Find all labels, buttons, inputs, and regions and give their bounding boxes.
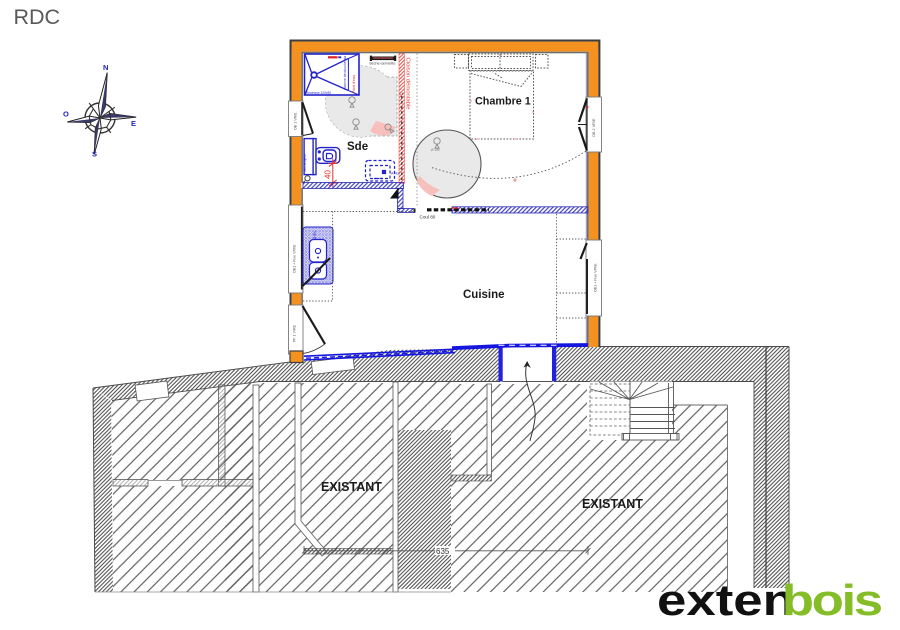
svg-text:Cuisine: Cuisine — [463, 289, 505, 301]
svg-text:OB 2 VR/E: OB 2 VR/E — [592, 118, 596, 137]
svg-text:Sde: Sde — [347, 141, 368, 153]
svg-text:635: 635 — [436, 547, 450, 556]
svg-text:EXISTANT: EXISTANT — [582, 497, 643, 511]
svg-text:Sèche-serviette: Sèche-serviette — [369, 62, 395, 66]
svg-text:S: S — [92, 150, 97, 159]
svg-text:OB1 + Fixe V/R/E: OB1 + Fixe V/R/E — [293, 244, 297, 273]
svg-text:PF 1 V/RE: PF 1 V/RE — [293, 324, 297, 342]
svg-text:N: N — [103, 63, 108, 72]
svg-text:O: O — [63, 110, 69, 119]
svg-text:Ø 150: Ø 150 — [431, 148, 440, 152]
svg-text:exten: exten — [657, 576, 795, 625]
svg-text:OB1 + Fixe V/R/E: OB1 + Fixe V/R/E — [594, 263, 598, 292]
svg-text:Point d'eau: Point d'eau — [352, 75, 356, 93]
svg-text:Receveur 120x90: Receveur 120x90 — [306, 91, 331, 95]
svg-text:colonne de douche pla: colonne de douche pla — [343, 56, 347, 90]
svg-text:Cloison démontable: Cloison démontable — [405, 58, 411, 111]
svg-text:E: E — [131, 119, 136, 128]
svg-text:Coul 80: Coul 80 — [420, 215, 436, 220]
svg-text:40: 40 — [324, 170, 333, 179]
svg-text:A+Ev: A+Ev — [313, 230, 317, 239]
svg-text:bois: bois — [782, 576, 882, 625]
svg-text:WC broyeur: WC broyeur — [303, 153, 307, 172]
svg-text:Chambre 1: Chambre 1 — [475, 96, 531, 108]
svg-text:RDC: RDC — [14, 5, 61, 29]
svg-text:OB 1 VR/E: OB 1 VR/E — [294, 112, 298, 130]
svg-text:EXISTANT: EXISTANT — [321, 480, 382, 494]
svg-text:A+Ev: A+Ev — [391, 172, 400, 176]
